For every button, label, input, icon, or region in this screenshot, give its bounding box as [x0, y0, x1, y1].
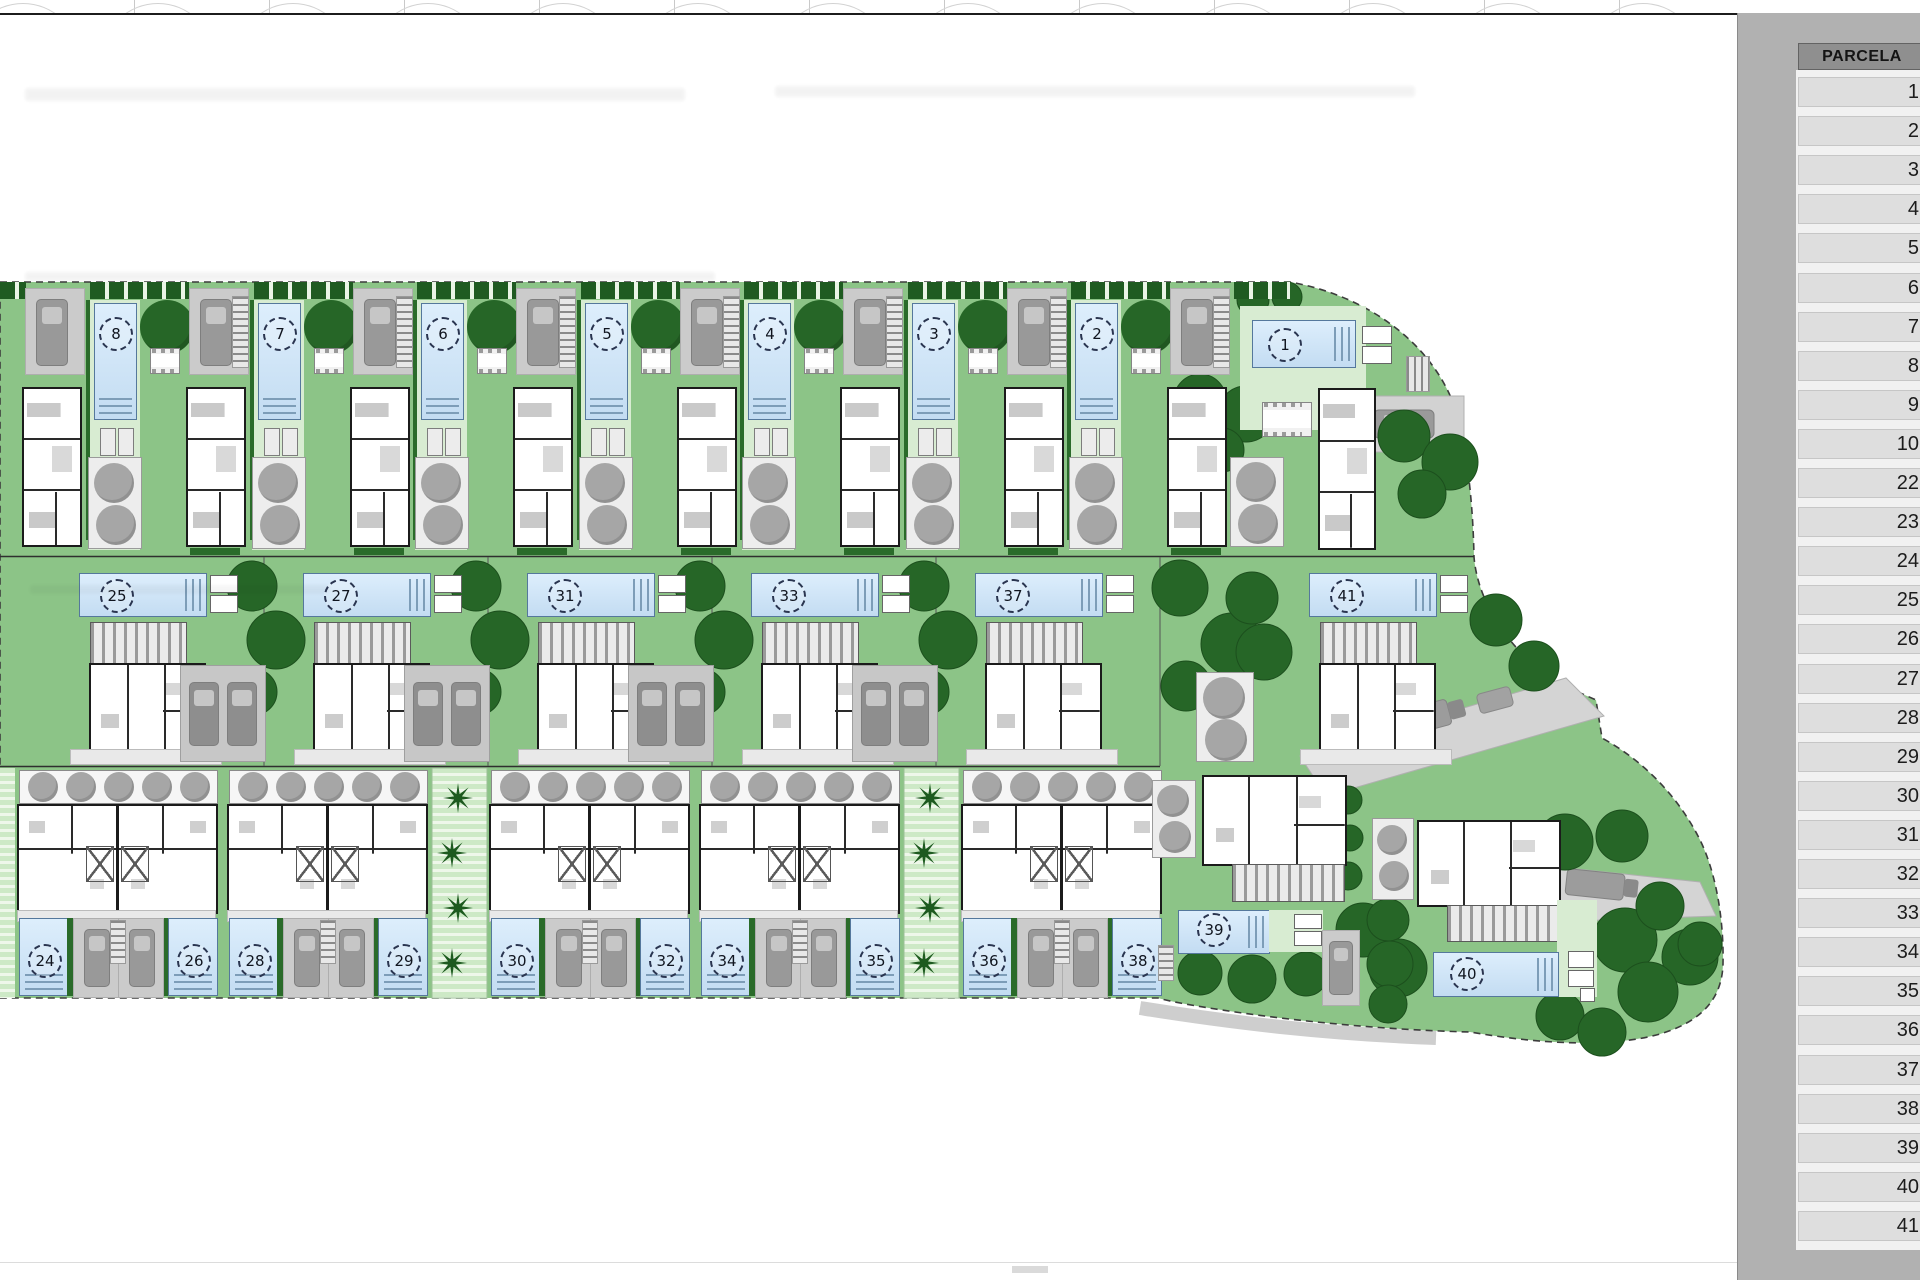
parcela-row[interactable]: 23 — [1798, 507, 1920, 537]
parcel-number-label: 40 — [1450, 957, 1484, 991]
gray-tree-icon — [421, 463, 461, 503]
gray-tree-icon — [750, 505, 790, 545]
pool — [975, 573, 1103, 617]
tree-icon — [958, 300, 1012, 354]
lounger — [754, 428, 770, 456]
ghost-artifact — [25, 272, 715, 281]
parcela-row[interactable]: 29 — [1798, 742, 1920, 772]
gray-tree-icon — [1236, 462, 1276, 502]
house-plan-39 — [1202, 775, 1347, 866]
gray-tree-icon — [1377, 825, 1407, 855]
house-plan — [1319, 663, 1436, 751]
pergola-deck — [1320, 622, 1417, 664]
lounger — [282, 428, 298, 456]
stairs — [1406, 356, 1430, 392]
gray-tree-icon — [862, 772, 892, 802]
villa-plot-top-partial — [0, 282, 90, 554]
tree-icon — [631, 300, 685, 354]
house-plan — [589, 804, 690, 914]
stairs — [1050, 296, 1067, 368]
outdoor-kitchen — [1106, 595, 1134, 613]
lounger — [100, 428, 116, 456]
parcel-number-label: 5 — [590, 317, 624, 351]
outdoor-kitchen — [1294, 914, 1322, 929]
car-icon — [451, 682, 481, 746]
dining-set — [641, 348, 671, 374]
gray-tree-icon — [748, 772, 778, 802]
hedge — [844, 548, 894, 555]
ghost-artifact — [25, 88, 685, 101]
gray-tree-icon — [1086, 772, 1116, 802]
gray-tree-icon — [258, 463, 298, 503]
parcel-number-label: 36 — [972, 944, 1006, 978]
house-plan — [489, 804, 590, 914]
pergola-deck — [1447, 905, 1562, 942]
patio — [579, 457, 633, 549]
driveway — [189, 288, 249, 375]
pool — [79, 573, 207, 617]
parcela-row[interactable]: 34 — [1798, 937, 1920, 967]
pergola-strip — [19, 770, 218, 804]
parcela-row[interactable]: 22 — [1798, 468, 1920, 498]
parcela-row[interactable]: 24 — [1798, 546, 1920, 576]
house-plan — [513, 387, 573, 547]
gray-tree-icon — [390, 772, 420, 802]
plan-bottom-border — [0, 1262, 1737, 1263]
parcela-row[interactable]: 1 — [1798, 77, 1920, 107]
gray-tree-icon — [1124, 772, 1154, 802]
gray-tree-icon — [748, 463, 788, 503]
gray-tree-icon — [238, 772, 268, 802]
stair-core — [121, 846, 149, 882]
parcela-row[interactable]: 4 — [1798, 194, 1920, 224]
duplex-plot-group: 3435 — [697, 768, 902, 998]
hedge — [517, 548, 567, 555]
parcela-table-header: PARCELA — [1798, 43, 1920, 70]
patio — [252, 457, 306, 549]
parcel-number-label: 32 — [649, 944, 683, 978]
stair-core — [558, 846, 586, 882]
house-plan — [1004, 387, 1064, 547]
gray-tree-icon — [28, 772, 58, 802]
pergola-deck — [90, 622, 187, 664]
outdoor-kitchen — [1294, 931, 1322, 946]
hedge — [1071, 282, 1170, 299]
gray-tree-icon — [314, 772, 344, 802]
gray-tree-icon — [423, 505, 463, 545]
outdoor-kitchen — [882, 575, 910, 593]
pergola-strip — [491, 770, 690, 804]
dining-set — [1131, 348, 1161, 374]
house-plan — [677, 387, 737, 547]
tree-icon — [794, 300, 848, 354]
stair-core — [331, 846, 359, 882]
outdoor-kitchen — [658, 575, 686, 593]
house-plan — [961, 804, 1062, 914]
patio — [1196, 672, 1254, 762]
driveway — [680, 288, 740, 375]
lounger — [609, 428, 625, 456]
gray-tree-icon — [576, 772, 606, 802]
gray-tree-icon — [1048, 772, 1078, 802]
duplex-plot-group: 3638 — [959, 768, 1164, 998]
house-plan-40 — [1417, 820, 1561, 907]
site-plan-page: 8765432125273133374124262829303234353638… — [0, 0, 1920, 1280]
car-icon — [637, 682, 667, 746]
gray-tree-icon — [180, 772, 210, 802]
parcel-number-label: 31 — [548, 579, 582, 613]
dining-set — [150, 348, 180, 374]
house-plan — [840, 387, 900, 547]
driveway — [843, 288, 903, 375]
stairs — [559, 296, 576, 368]
car-icon — [1329, 941, 1353, 995]
parcel-number-label: 24 — [28, 944, 62, 978]
house-plan — [350, 387, 410, 547]
gray-tree-icon — [614, 772, 644, 802]
car-icon — [899, 682, 929, 746]
lounger — [936, 428, 952, 456]
pergola-strip — [963, 770, 1162, 804]
house-plan — [186, 387, 246, 547]
villa-plot-middle: 37 — [936, 557, 1160, 767]
ghost-artifact — [30, 585, 330, 594]
gray-tree-icon — [972, 772, 1002, 802]
pergola-deck — [762, 622, 859, 664]
outdoor-kitchen — [1106, 575, 1134, 593]
hedge — [1234, 282, 1290, 299]
tree-icon — [304, 300, 358, 354]
car-icon — [854, 299, 886, 366]
villa-plot-top: 8 — [90, 282, 254, 554]
villa-plot-top: 5 — [581, 282, 745, 554]
villa-plot-middle: 41 — [1270, 557, 1494, 767]
hedge — [681, 548, 731, 555]
outdoor-kitchen — [210, 595, 238, 613]
lounger — [118, 428, 134, 456]
patio — [1152, 780, 1196, 858]
hedge — [581, 282, 680, 299]
house-plan — [699, 804, 800, 914]
plan-layer: 8765432125273133374124262829303234353638… — [0, 0, 1740, 1280]
stair-core — [803, 846, 831, 882]
car-icon — [1028, 929, 1054, 987]
dining-set — [1262, 402, 1312, 437]
lounger — [591, 428, 607, 456]
stairs — [792, 920, 808, 964]
parcela-row[interactable]: 37 — [1798, 1055, 1920, 1085]
pergola-strip — [229, 770, 428, 804]
parcel-number-label: 26 — [177, 944, 211, 978]
parcel-number-label: 30 — [500, 944, 534, 978]
hedge — [90, 282, 189, 299]
carport — [404, 665, 490, 762]
car-icon — [556, 929, 582, 987]
gray-tree-icon — [1077, 505, 1117, 545]
gray-tree-icon — [276, 772, 306, 802]
parcel-number-label: 29 — [387, 944, 421, 978]
car-icon — [36, 299, 68, 366]
parcela-row[interactable]: 39 — [1798, 1133, 1920, 1163]
car-icon — [189, 682, 219, 746]
hedge — [254, 282, 353, 299]
parcel-number-label: 3 — [917, 317, 951, 351]
parcel-number-label: 33 — [772, 579, 806, 613]
outdoor-kitchen — [658, 595, 686, 613]
gray-tree-icon — [912, 463, 952, 503]
gray-tree-icon — [94, 463, 134, 503]
house-plan — [227, 804, 328, 914]
carport — [628, 665, 714, 762]
ghost-artifact — [775, 86, 1415, 97]
villa-plot-top: 6 — [417, 282, 581, 554]
parcela-row[interactable]: 31 — [1798, 820, 1920, 850]
tree-icon — [140, 300, 194, 354]
house-plan — [1061, 804, 1162, 914]
parcela-row[interactable]: 5 — [1798, 233, 1920, 263]
stairs — [232, 296, 249, 368]
carport — [852, 665, 938, 762]
stair-core — [1030, 846, 1058, 882]
carport — [180, 665, 266, 762]
outdoor-kitchen — [434, 595, 462, 613]
gray-tree-icon — [142, 772, 172, 802]
driveway — [1007, 288, 1067, 375]
stairs — [110, 920, 126, 964]
parcela-row[interactable]: 3 — [1798, 155, 1920, 185]
parcela-row[interactable]: 30 — [1798, 781, 1920, 811]
hedge — [1008, 548, 1058, 555]
parcela-row[interactable]: 2 — [1798, 116, 1920, 146]
patio — [906, 457, 960, 549]
stairs — [396, 296, 413, 368]
lounger — [772, 428, 788, 456]
patio — [1372, 818, 1414, 900]
parcela-row[interactable]: 32 — [1798, 859, 1920, 889]
house-plan — [1318, 388, 1376, 550]
parcel-number-label: 27 — [324, 579, 358, 613]
parcela-row[interactable]: 10 — [1798, 429, 1920, 459]
outdoor-kitchen — [434, 575, 462, 593]
plan-bottom-mark — [1012, 1266, 1048, 1273]
dining-set — [477, 348, 507, 374]
duplex-plot-group: 2829 — [225, 768, 430, 998]
patio — [742, 457, 796, 549]
terrace — [1300, 749, 1452, 765]
gray-tree-icon — [652, 772, 682, 802]
parcela-row[interactable]: 7 — [1798, 312, 1920, 342]
tree-icon — [467, 300, 521, 354]
car-icon — [1073, 929, 1099, 987]
outdoor-kitchen — [882, 595, 910, 613]
gray-tree-icon — [585, 463, 625, 503]
parcela-row[interactable]: 41 — [1798, 1211, 1920, 1241]
driveway — [353, 288, 413, 375]
pergola-deck — [986, 622, 1083, 664]
lounger — [445, 428, 461, 456]
gray-tree-icon — [914, 505, 954, 545]
car-icon — [861, 682, 891, 746]
parcel-number-label: 7 — [263, 317, 297, 351]
patio — [415, 457, 469, 549]
stair-core — [86, 846, 114, 882]
duplex-plot-group: 2426 — [15, 768, 220, 998]
driveway — [25, 288, 85, 375]
pergola-deck — [538, 622, 635, 664]
stairs — [723, 296, 740, 368]
parcel-number-label: 35 — [859, 944, 893, 978]
gray-tree-icon — [538, 772, 568, 802]
house-plan — [985, 663, 1102, 751]
house-plan — [22, 387, 82, 547]
car-icon — [675, 682, 705, 746]
driveway — [1322, 930, 1360, 1006]
car-icon — [227, 682, 257, 746]
parcela-row[interactable]: 40 — [1798, 1172, 1920, 1202]
dining-set — [314, 348, 344, 374]
pergola-deck — [1232, 864, 1345, 902]
gray-tree-icon — [96, 505, 136, 545]
parcel-number-label: 37 — [996, 579, 1030, 613]
car-icon — [84, 929, 110, 987]
stairs — [320, 920, 336, 964]
parcela-row[interactable]: 8 — [1798, 351, 1920, 381]
outdoor-kitchen — [1362, 326, 1392, 344]
stairs — [1158, 945, 1174, 981]
gray-tree-icon — [1205, 719, 1247, 761]
dining-set — [968, 348, 998, 374]
car-icon — [339, 929, 365, 987]
duplex-plot-group: 3032 — [487, 768, 692, 998]
parcela-row[interactable]: 28 — [1798, 703, 1920, 733]
outdoor-kitchen — [1568, 951, 1594, 968]
lounger — [427, 428, 443, 456]
parcel-number-label: 41 — [1330, 579, 1364, 613]
parcela-row[interactable]: 6 — [1798, 273, 1920, 303]
gray-tree-icon — [1238, 504, 1278, 544]
car-icon — [413, 682, 443, 746]
lounger — [918, 428, 934, 456]
lounger — [264, 428, 280, 456]
villa-plot-top: 3 — [908, 282, 1072, 554]
outdoor-kitchen — [1440, 595, 1468, 613]
gray-tree-icon — [1379, 861, 1409, 891]
patio — [88, 457, 142, 549]
parcel-number-label: 39 — [1197, 913, 1231, 947]
parcel-number-label: 1 — [1268, 328, 1302, 362]
pool — [303, 573, 431, 617]
pool — [1309, 573, 1437, 617]
house-plan — [799, 804, 900, 914]
car-icon — [364, 299, 396, 366]
villa-plot-corner: 1 — [1164, 282, 1484, 562]
gray-tree-icon — [786, 772, 816, 802]
stairs — [1054, 920, 1070, 964]
car-icon — [766, 929, 792, 987]
hedge — [0, 282, 26, 299]
stair-core — [1065, 846, 1093, 882]
lounger — [1081, 428, 1097, 456]
car-icon — [200, 299, 232, 366]
gray-tree-icon — [104, 772, 134, 802]
villa-plot-top: 7 — [254, 282, 418, 554]
house-plan — [117, 804, 218, 914]
driveway — [516, 288, 576, 375]
parcel-number-label: 34 — [710, 944, 744, 978]
car-icon — [527, 299, 559, 366]
gray-tree-icon — [500, 772, 530, 802]
parcel-number-label: 6 — [426, 317, 460, 351]
stair-core — [593, 846, 621, 882]
gray-tree-icon — [1203, 677, 1245, 719]
patio — [1069, 457, 1123, 549]
gray-tree-icon — [1157, 785, 1189, 817]
outdoor-kitchen — [1440, 575, 1468, 593]
hedge — [908, 282, 1007, 299]
parcela-sidebar: PARCELA 12345678910222324252627282930313… — [1737, 13, 1920, 1280]
gray-tree-icon — [710, 772, 740, 802]
gray-tree-icon — [1010, 772, 1040, 802]
parcela-row[interactable]: 38 — [1798, 1094, 1920, 1124]
hedge — [354, 548, 404, 555]
parcela-row[interactable]: 26 — [1798, 624, 1920, 654]
hedge — [744, 282, 843, 299]
parcel-number-label: 38 — [1121, 944, 1155, 978]
outdoor-kitchen — [1568, 970, 1594, 987]
pergola-deck — [314, 622, 411, 664]
gray-tree-icon — [66, 772, 96, 802]
parcela-row[interactable]: 35 — [1798, 976, 1920, 1006]
parcela-row[interactable]: 27 — [1798, 664, 1920, 694]
car-icon — [691, 299, 723, 366]
lounger — [1099, 428, 1115, 456]
parcel-number-label: 28 — [238, 944, 272, 978]
house-plan — [327, 804, 428, 914]
stair-core — [296, 846, 324, 882]
pool — [527, 573, 655, 617]
gray-tree-icon — [824, 772, 854, 802]
pool — [751, 573, 879, 617]
parcel-number-label: 2 — [1080, 317, 1114, 351]
gray-tree-icon — [260, 505, 300, 545]
gray-tree-icon — [1159, 821, 1191, 853]
terrace — [966, 749, 1118, 765]
parcela-row[interactable]: 33 — [1798, 898, 1920, 928]
outdoor-kitchen — [1580, 988, 1595, 1002]
house-plan — [17, 804, 118, 914]
parcela-row[interactable]: 9 — [1798, 390, 1920, 420]
parcela-row[interactable]: 25 — [1798, 585, 1920, 615]
car-icon — [294, 929, 320, 987]
car-icon — [1018, 299, 1050, 366]
stairs — [886, 296, 903, 368]
hedge — [417, 282, 516, 299]
patio — [1230, 457, 1284, 547]
outdoor-kitchen — [1362, 346, 1392, 364]
parcela-row[interactable]: 36 — [1798, 1015, 1920, 1045]
car-icon — [601, 929, 627, 987]
gray-tree-icon — [352, 772, 382, 802]
parcel-number-label: 8 — [99, 317, 133, 351]
villa-plot-top: 4 — [744, 282, 908, 554]
gray-tree-icon — [587, 505, 627, 545]
stairs — [582, 920, 598, 964]
pergola-strip — [701, 770, 900, 804]
car-icon — [129, 929, 155, 987]
dining-set — [804, 348, 834, 374]
parcel-number-label: 4 — [753, 317, 787, 351]
parcel-number-label: 25 — [100, 579, 134, 613]
